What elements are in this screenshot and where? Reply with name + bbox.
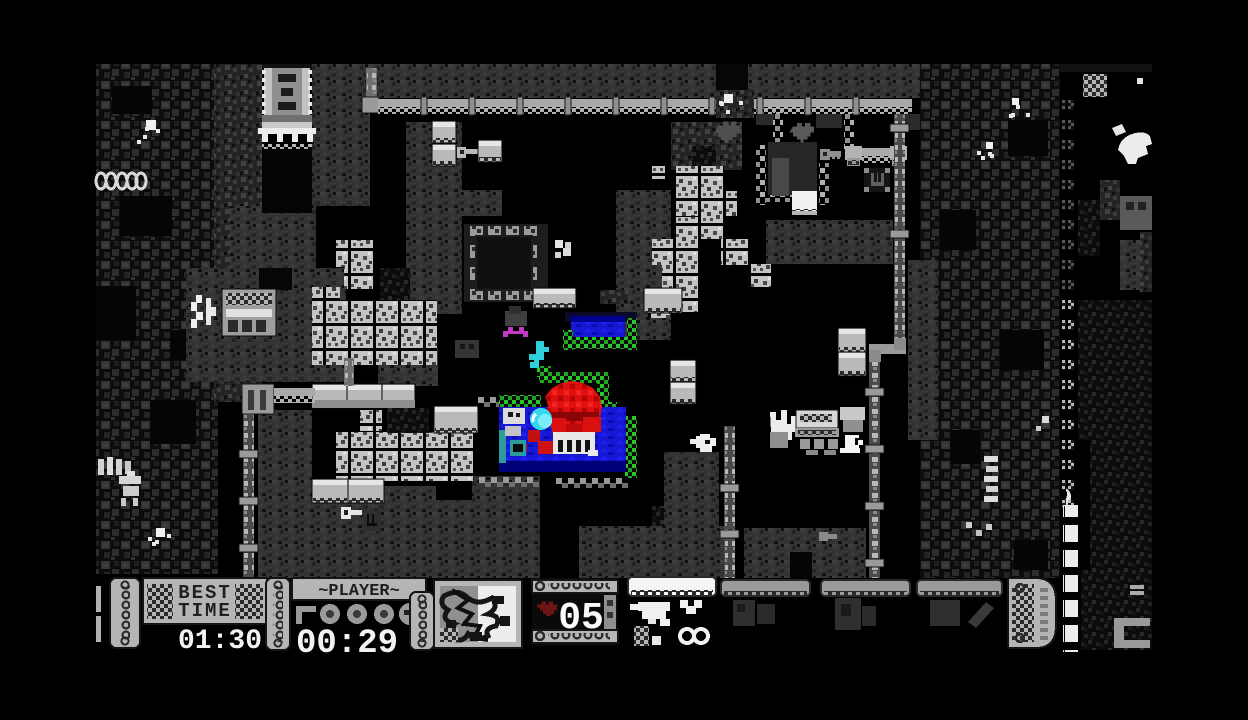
svg-text:05: 05 <box>558 597 604 640</box>
svg-text:01:30: 01:30 <box>178 626 262 657</box>
svg-text:TIME: TIME <box>178 600 232 622</box>
svg-text:00:29: 00:29 <box>296 625 398 663</box>
svg-text:~PLAYER~: ~PLAYER~ <box>318 582 400 601</box>
